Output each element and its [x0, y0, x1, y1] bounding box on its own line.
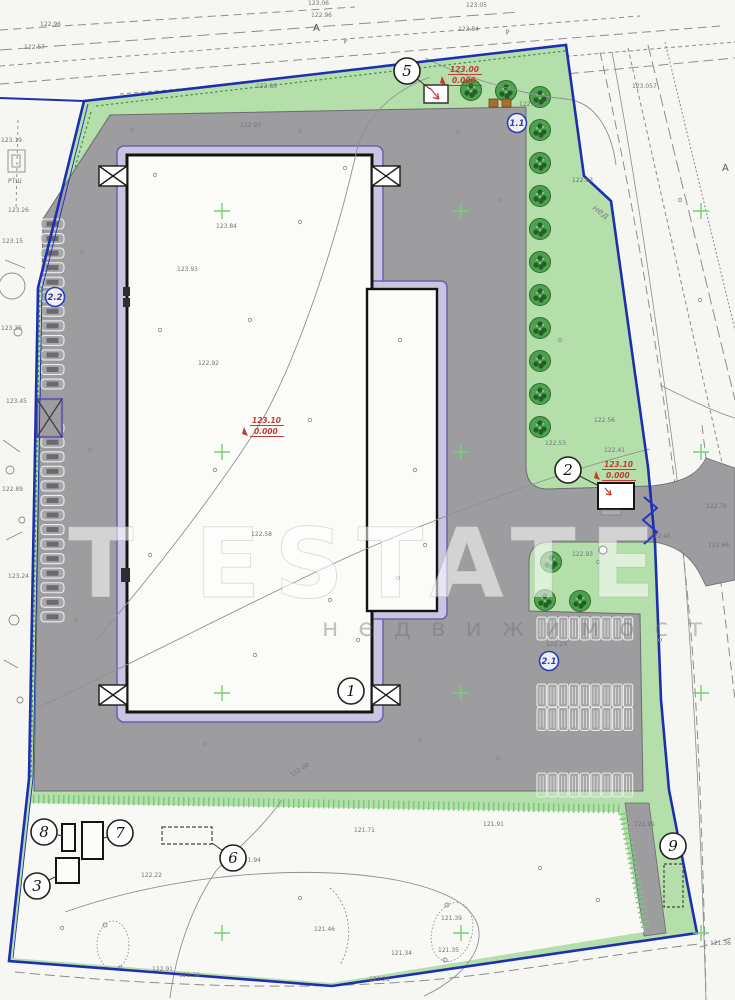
parking-stall-label: [47, 367, 59, 372]
tree-detail: [537, 189, 542, 194]
axis-letter: А: [722, 163, 729, 174]
parking-stall: [559, 684, 568, 707]
grid-cross-icon: [693, 203, 709, 219]
tree-detail: [539, 328, 541, 330]
tree-detail: [536, 424, 538, 426]
blue-callout-number: 2.1: [541, 657, 556, 667]
elevation-label: РТШ: [8, 178, 22, 185]
tree-detail: [537, 354, 542, 359]
blue-callout-number: 2.2: [47, 293, 62, 303]
tree-detail: [533, 295, 538, 300]
callout-number: 7: [115, 824, 125, 842]
parking-stall: [569, 773, 578, 797]
elevation-label: 123.19: [1, 137, 22, 144]
tree-detail: [502, 88, 504, 90]
tree-detail: [469, 92, 474, 97]
elevation-label: 122.86: [256, 83, 277, 90]
tree-icon: [530, 285, 551, 306]
callout-number: 9: [668, 837, 678, 855]
watermark-line2: н е д в и ж и м о с т: [322, 613, 709, 642]
tree-detail: [536, 226, 538, 228]
tree-detail: [533, 163, 538, 168]
elevation-label: 121.36: [710, 940, 731, 947]
red-elevation-top: 123.10: [252, 416, 281, 425]
parking-stall-label: [47, 498, 59, 503]
elevation-label: 123.45: [6, 398, 27, 405]
tree-icon: [530, 252, 551, 273]
tree-detail: [542, 390, 544, 392]
parking-stall: [591, 684, 600, 707]
tree-detail: [539, 97, 541, 99]
parking-stall-label: [47, 571, 59, 576]
tree-detail: [542, 126, 544, 128]
tree-detail: [537, 321, 542, 326]
parking-stall: [613, 684, 622, 707]
tree-detail: [539, 130, 541, 132]
tree-detail: [537, 288, 542, 293]
parking-stall-label: [47, 382, 59, 387]
elevation-label: 123.26: [8, 207, 29, 214]
tree-detail: [538, 132, 543, 137]
tree-detail: [542, 192, 544, 194]
parking-stall: [559, 708, 568, 731]
elevation-label: 123.35: [1, 325, 22, 332]
elevation-label: 122.56: [594, 417, 615, 424]
parking-stall-label: [47, 600, 59, 605]
parking-stall: [580, 708, 589, 731]
tree-icon: [530, 120, 551, 141]
tree-detail: [464, 90, 469, 95]
parking-stall: [569, 708, 578, 731]
callout-number: 2: [562, 461, 573, 479]
parking-stall-label: [47, 440, 59, 445]
tree-detail: [537, 387, 542, 392]
tree-detail: [539, 196, 541, 198]
tree-detail: [470, 90, 472, 92]
elevation-label: 122.93: [572, 551, 593, 558]
parking-stall: [548, 773, 557, 797]
tree-detail: [499, 91, 504, 96]
red-elevation-bottom: 0.000: [452, 76, 476, 85]
parking-stall: [537, 773, 546, 797]
tree-detail: [538, 363, 543, 368]
elevation-label: 122.91: [152, 966, 173, 973]
tree-detail: [542, 291, 544, 293]
callout-number: 5: [402, 62, 412, 80]
elevation-label: 122.53: [545, 440, 566, 447]
parking-stall: [602, 773, 611, 797]
parking-stall: [580, 684, 589, 707]
tree-detail: [542, 225, 544, 227]
elevation-label: 123.24: [8, 573, 29, 580]
tree-detail: [505, 91, 507, 93]
tree-icon: [530, 351, 551, 372]
tree-detail: [536, 160, 538, 162]
elevation-label: 122.57: [24, 44, 45, 51]
parking-stall: [591, 708, 600, 731]
tree-icon: [530, 153, 551, 174]
elevation-label: 122.92: [198, 360, 219, 367]
watermark-line1: T ESTATE: [68, 508, 670, 620]
tree-detail: [538, 198, 543, 203]
parking-stall: [580, 773, 589, 797]
elevation-label: 122.93: [240, 122, 261, 129]
parking-stall: [623, 708, 632, 731]
parking-stall-label: [47, 556, 59, 561]
elevation-label: 122.96: [311, 12, 332, 19]
elevation-label: 123.06: [308, 0, 329, 7]
parking-stall: [613, 773, 622, 797]
tree-detail: [533, 394, 538, 399]
tree-detail: [536, 391, 538, 393]
tree-detail: [533, 328, 538, 333]
elevation-label: 122.63: [572, 177, 593, 184]
elevation-label: 121.35: [438, 947, 459, 954]
parking-stall-label: [47, 323, 59, 328]
elevation-label: 121.34: [391, 950, 412, 957]
parking-stall: [569, 684, 578, 707]
parking-stall: [623, 684, 632, 707]
parking-stall-label: [47, 614, 59, 619]
parking-stall: [591, 773, 600, 797]
parking-stall: [548, 684, 557, 707]
tree-detail: [533, 361, 538, 366]
parking-stall-label: [47, 265, 59, 270]
axis-letter: А: [313, 23, 320, 34]
tree-detail: [536, 127, 538, 129]
tree-detail: [537, 255, 542, 260]
blue-callout-number: 1.1: [509, 119, 524, 129]
tree-icon: [530, 417, 551, 438]
tree-icon: [530, 219, 551, 240]
elevation-label: 121.46: [314, 926, 335, 933]
elevation-label: 122.23: [546, 641, 567, 648]
tree-detail: [538, 264, 543, 269]
tree-detail: [539, 394, 541, 396]
parking-stall-label: [47, 469, 59, 474]
parking-stall: [602, 684, 611, 707]
utility-letter: Р: [505, 28, 511, 37]
parking-stall-label: [47, 542, 59, 547]
tree-detail: [536, 325, 538, 327]
tree-detail: [533, 427, 538, 432]
tree-detail: [537, 222, 542, 227]
parking-stall: [602, 708, 611, 731]
parking-stall-label: [47, 585, 59, 590]
elevation-label: 122.64: [519, 101, 540, 108]
parking-stall-label: [47, 483, 59, 488]
tree-detail: [542, 324, 544, 326]
site-plan-page: T ESTATE н е д в и ж и м о с т 123.06123…: [0, 0, 735, 1000]
tree-detail: [538, 297, 543, 302]
tree-detail: [533, 262, 538, 267]
tree-detail: [539, 295, 541, 297]
parking-stall: [623, 773, 632, 797]
parking-stall-label: [47, 338, 59, 343]
red-elevation-bottom: 0.000: [606, 471, 630, 480]
tree-detail: [467, 87, 469, 89]
tree-detail: [538, 429, 543, 434]
parking-stall: [548, 708, 557, 731]
tree-detail: [536, 259, 538, 261]
utility-letter: Р: [343, 37, 349, 46]
tree-detail: [533, 130, 538, 135]
tree-detail: [538, 231, 543, 236]
tree-detail: [536, 358, 538, 360]
tree-detail: [504, 93, 509, 98]
tree-detail: [542, 159, 544, 161]
grid-cross-icon: [693, 444, 709, 460]
tree-icon: [530, 186, 551, 207]
elevation-label: 123.15: [2, 238, 23, 245]
tree-detail: [539, 229, 541, 231]
elevation-label: 123.05: [466, 2, 487, 9]
tree-icon: [530, 318, 551, 339]
parking-stall: [537, 708, 546, 731]
callout-number: 1: [346, 682, 356, 700]
boundary-stub-left: [0, 98, 84, 101]
tree-detail: [537, 420, 542, 425]
parking-stall: [613, 708, 622, 731]
tree-icon: [496, 81, 517, 102]
elevation-label: 122.89: [2, 486, 23, 493]
tree-detail: [542, 258, 544, 260]
tree-detail: [542, 93, 544, 95]
tree-detail: [537, 123, 542, 128]
tree-detail: [533, 196, 538, 201]
tree-detail: [542, 357, 544, 359]
tree-detail: [538, 165, 543, 170]
tree-detail: [538, 396, 543, 401]
parking-stall-label: [47, 352, 59, 357]
tree-detail: [536, 193, 538, 195]
tree-detail: [539, 163, 541, 165]
parking-stall: [559, 773, 568, 797]
parking-stall: [537, 684, 546, 707]
elevation-label: 121.71: [354, 827, 375, 834]
tree-detail: [533, 229, 538, 234]
elevation-label: 122.22: [141, 872, 162, 879]
parking-stall-label: [47, 236, 59, 241]
tree-detail: [542, 423, 544, 425]
equipment-box: [37, 399, 62, 437]
parking-stall-label: [47, 309, 59, 314]
tree-icon: [530, 384, 551, 405]
tree-detail: [539, 361, 541, 363]
elevation-label: 121.21: [369, 976, 390, 983]
survey-point: [678, 198, 681, 201]
elevation-label: 121.34: [179, 972, 200, 979]
elevation-label: 122.41: [604, 447, 625, 454]
tree-detail: [537, 156, 542, 161]
tree-detail: [539, 262, 541, 264]
elevation-label: 122.66: [708, 542, 729, 549]
parking-stall-label: [47, 454, 59, 459]
parking-stall-label: [47, 513, 59, 518]
elevation-label: 123.84: [216, 223, 237, 230]
callout-number: 3: [32, 877, 42, 895]
red-elevation-top: 123.10: [604, 460, 633, 469]
survey-point: [698, 298, 701, 301]
elevation-label: 122.58: [251, 531, 272, 538]
callout-number: 8: [39, 823, 49, 841]
red-elevation-bottom: 0.000: [254, 427, 278, 436]
elevation-label: 121.91: [483, 821, 504, 828]
site-plan-drawing: T ESTATE н е д в и ж и м о с т 123.06123…: [0, 0, 735, 1000]
elevation-label: 123.93: [177, 266, 198, 273]
elevation-label: 123.057: [632, 83, 657, 90]
parking-stall-label: [47, 280, 59, 285]
tree-detail: [539, 427, 541, 429]
tree-detail: [538, 330, 543, 335]
grid-cross-icon: [693, 685, 709, 701]
elevation-label: 122.45: [650, 533, 671, 540]
elevation-label: 121.39: [441, 915, 462, 922]
elevation-label: 122.76: [706, 503, 727, 510]
elevation-label: 123.84: [458, 26, 479, 33]
elevation-label: 121.91: [634, 821, 655, 828]
tree-detail: [536, 292, 538, 294]
tree-detail: [473, 86, 475, 88]
callout-number: 6: [228, 849, 238, 867]
red-elevation-top: 123.00: [450, 65, 479, 74]
parking-stall-label: [47, 527, 59, 532]
elevation-label: 122.96: [40, 21, 61, 28]
